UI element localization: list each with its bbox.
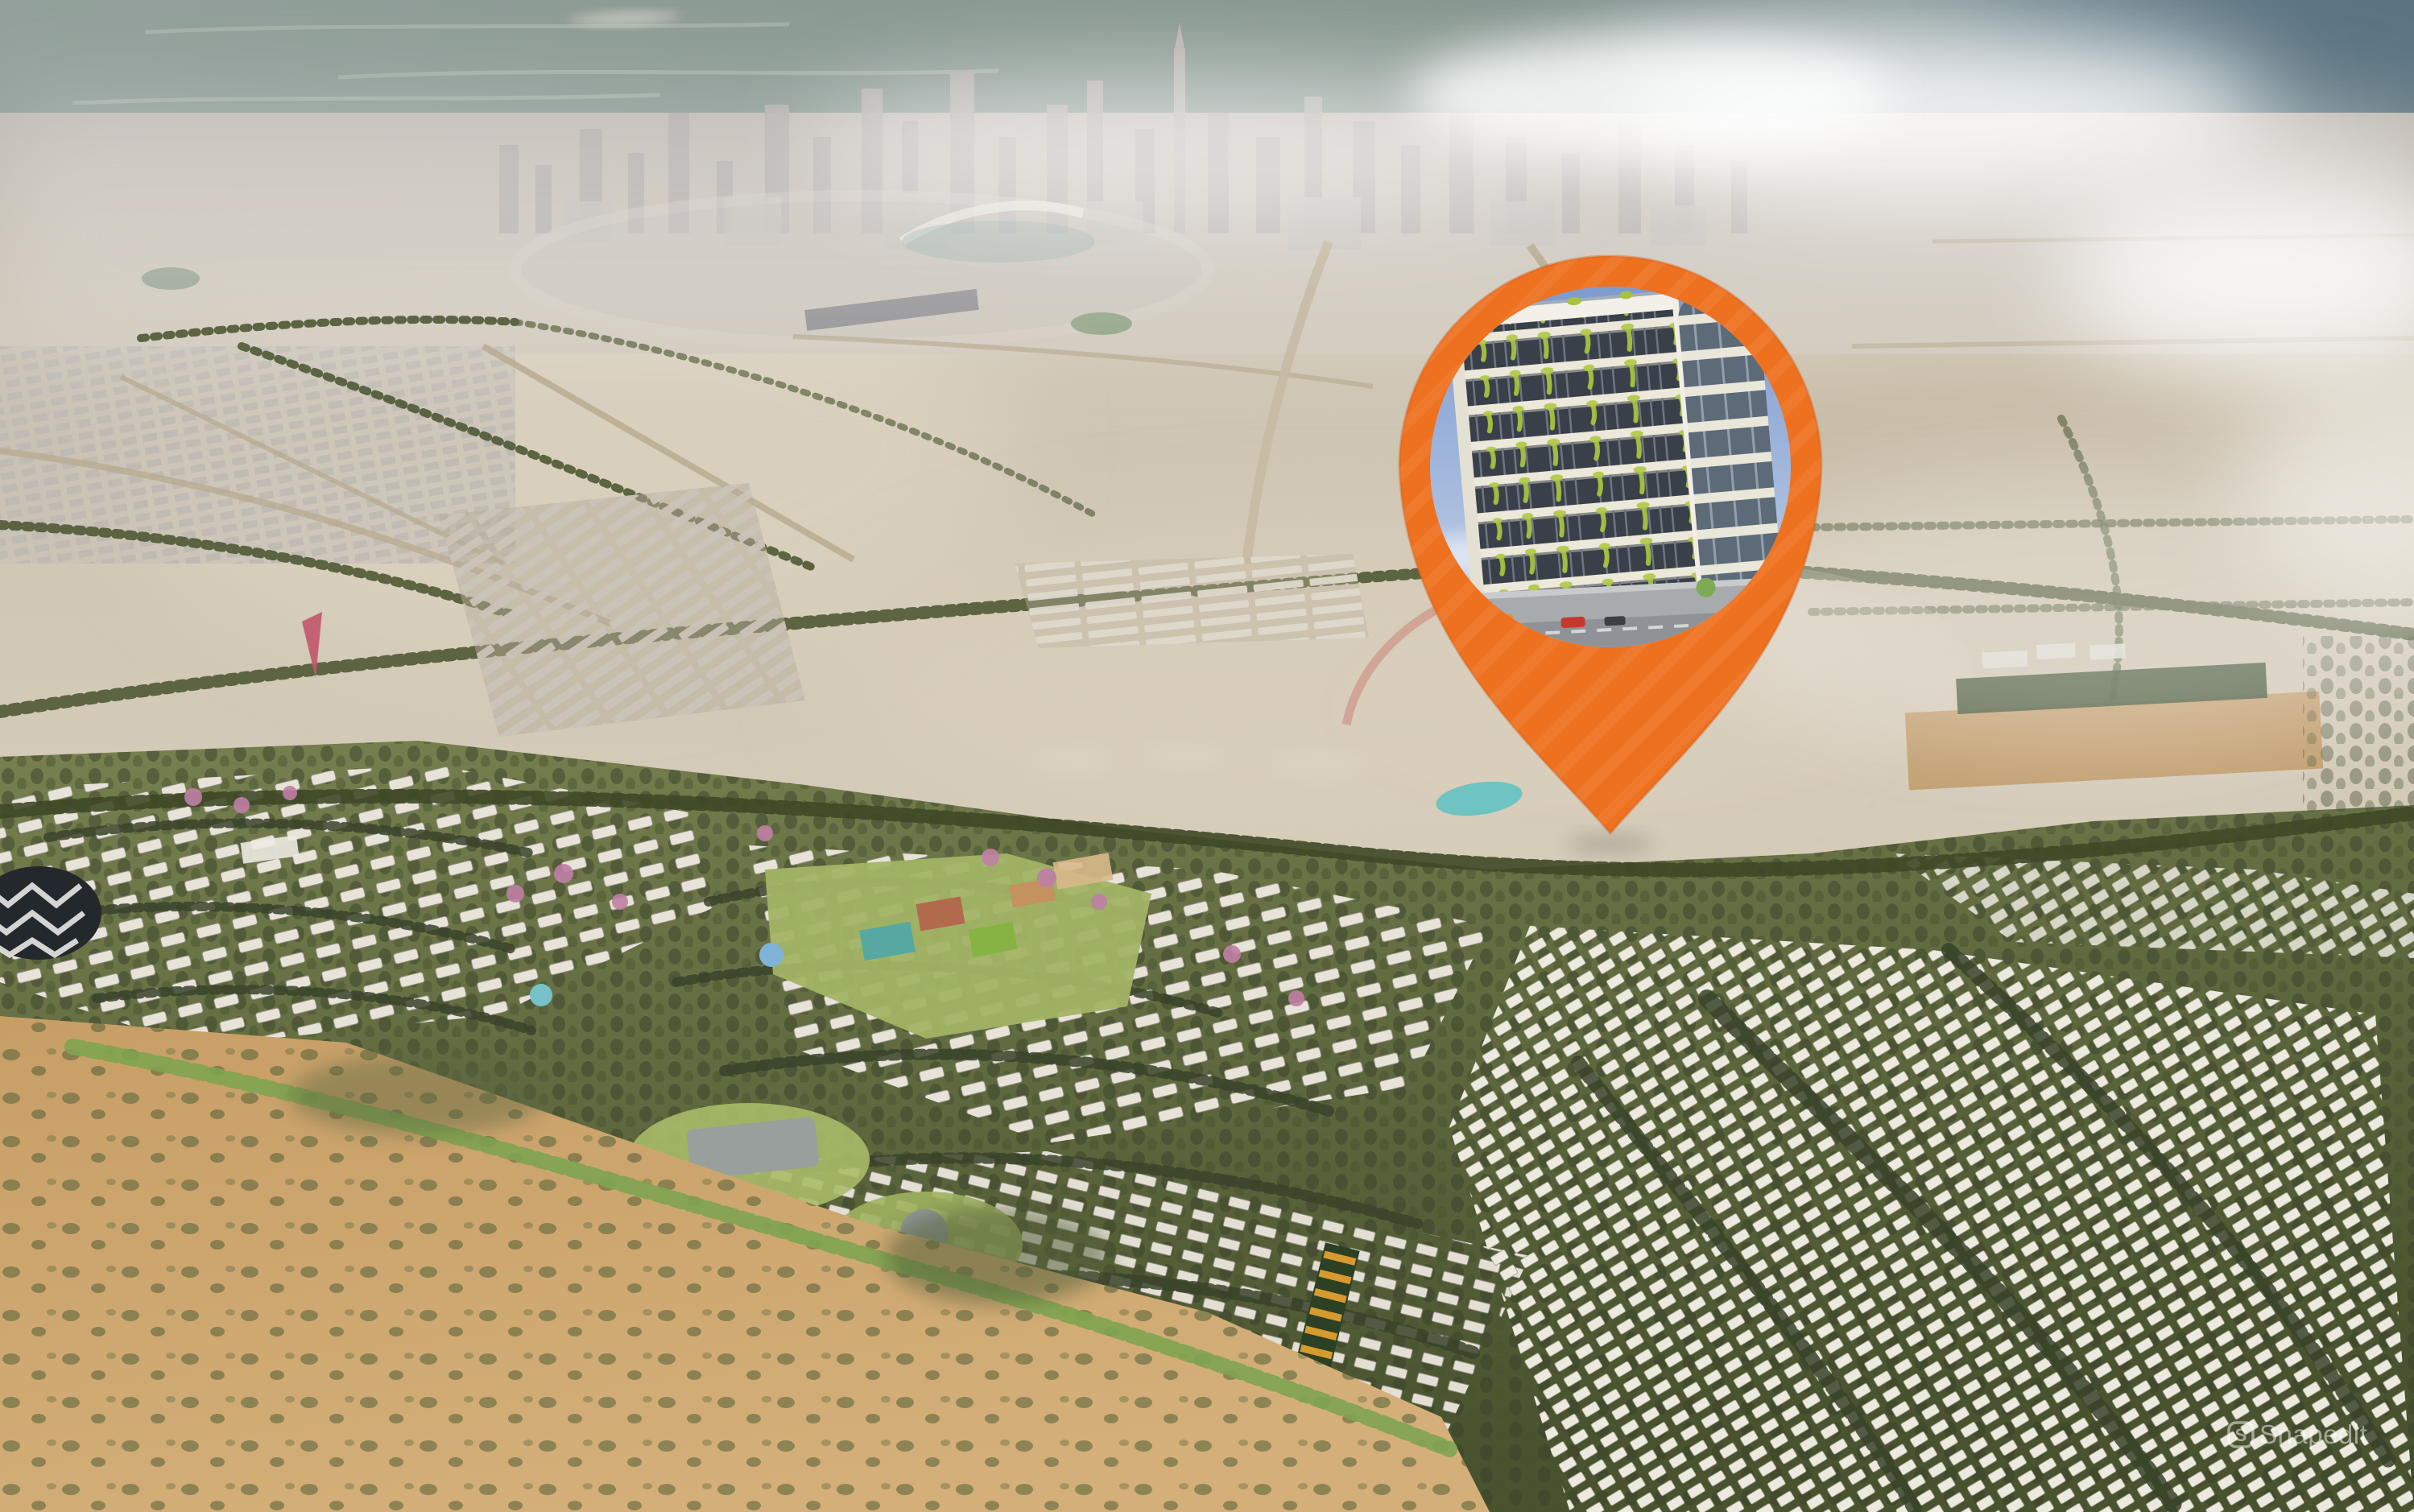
snapedit-label: Snapedit bbox=[2259, 1419, 2367, 1449]
balcony-plants bbox=[1460, 309, 1703, 613]
pin-shadow bbox=[1566, 833, 1655, 854]
dark-car bbox=[1604, 616, 1626, 626]
red-car bbox=[1560, 617, 1585, 629]
watermark-remnant-smudge bbox=[1023, 746, 1119, 775]
small-teal-pond bbox=[530, 984, 552, 1006]
snapedit-logo-letter: S bbox=[2235, 1425, 2247, 1445]
aerial-render-scene: S Snapedit bbox=[0, 0, 2414, 1512]
bright-unit-rows bbox=[1015, 554, 1369, 648]
blue-pond bbox=[759, 943, 783, 967]
